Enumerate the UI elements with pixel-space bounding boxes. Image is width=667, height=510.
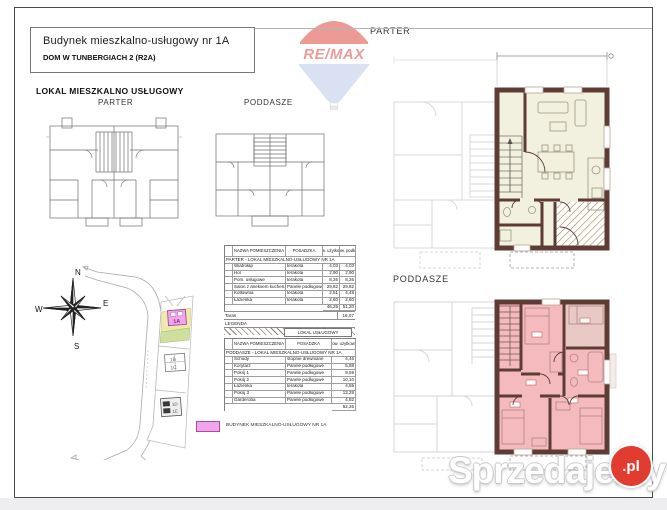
header-area1: pow. użytkowa (332, 339, 356, 350)
table-row: Pom. usługoweterakota8,268,26 (225, 277, 356, 284)
cell-name: Schody (233, 357, 286, 364)
table-row: Holterakota2,902,90 (225, 271, 356, 278)
cell-name: Wiatrołap (233, 264, 286, 271)
table-row: Kotłowniaterakota2,514,48 (225, 291, 356, 298)
balloon-basket (330, 106, 338, 110)
table-row: KorytarzPanele podłogowe5,88 (225, 364, 356, 371)
table-row: Schodystopnie drewniane4,46 (225, 357, 356, 364)
cell-area2: 4,48 (340, 291, 356, 298)
table-row: Pokój 3Panele podłogowe13,28 (225, 391, 356, 398)
terrace-outline (510, 252, 574, 268)
watermark-pl-badge: .pl (609, 444, 653, 488)
road (71, 266, 161, 460)
compass-e: E (103, 299, 108, 308)
compass-w: W (35, 305, 43, 314)
table-row: Pokój 1Panele podłogowe9,59 (225, 370, 356, 377)
compass-s: S (74, 342, 79, 351)
cell-name: Pokój 3 (233, 391, 286, 398)
table-row: Pokój 2Panele podłogowe10,10 (225, 377, 356, 384)
cell-floor: terakota (286, 277, 323, 284)
remax-logo: RE/MAX (286, 6, 382, 110)
compass-n: N (75, 268, 81, 277)
cell-area1: 29,82 (323, 284, 340, 291)
cell-floor: Panele podłogowe (286, 391, 332, 398)
plan-sheet: RE/MAX Budynek mieszkalno-usługowy nr 1A… (0, 0, 667, 510)
building-legend-label: BUDYNEK MIESZKALNO-USŁUGOWY NR 1A (226, 423, 326, 428)
cell-floor: Panele podłogowe (286, 377, 332, 384)
section-title: LOKAL MIESZKALNO USŁUGOWY (36, 86, 184, 96)
remax-logo-text: RE/MAX (303, 46, 365, 63)
building-1e-label: 1E (172, 409, 178, 414)
cell-area1: 2,51 (323, 291, 340, 298)
cell-area1: 5,88 (332, 364, 356, 371)
parter-area-table: NAZWA POMIESZCZENIA POSADZKA pow. użytko… (224, 245, 356, 311)
building-1d-1e: 1D 1E (160, 397, 181, 416)
table-row: Wiatrołapterakota4,034,03 (225, 264, 356, 271)
cell-area1: 4,82 (332, 398, 356, 405)
building-1a-label: 1A (173, 319, 180, 325)
cell-area1: 13,28 (332, 391, 356, 398)
header-area2: pow. podłóg (340, 246, 356, 257)
cell-area1: 8,26 (323, 277, 340, 284)
balloon-bottom (298, 64, 370, 104)
small-parter-plan (40, 112, 188, 232)
cell-floor: terakota (286, 264, 323, 271)
table-header-row: NAZWA POMIESZCZENIA POSADZKA pow. użytko… (225, 246, 356, 257)
usluga-hatch-label: LOKAL USŁUGOWY (284, 328, 352, 337)
building-1a: 1A (167, 309, 186, 325)
table-total-row: 52,26 (225, 404, 356, 411)
window-sill (610, 354, 616, 388)
cell-floor: terakota (286, 384, 332, 391)
cell-area2: 8,26 (340, 277, 356, 284)
cell-name: Pokój 1 (233, 370, 286, 377)
table-section-label: PARTER - LOKAL MIESZKALNO-USŁUGOWY NR 1A (225, 257, 356, 264)
header-name: NAZWA POMIESZCZENIA (233, 339, 286, 350)
table-row: GarderobaPanele podłogowe4,82 (225, 398, 356, 405)
taras-legenda-block: Taras 16,07 LEGENDA (224, 311, 355, 328)
header-area1: pow. użytkowa (323, 246, 340, 257)
header-name: NAZWA POMIESZCZENIA (233, 246, 286, 257)
building-1b-1c: 1B 1C (164, 353, 185, 371)
cell-name: Korytarz (233, 364, 286, 371)
cell-floor: terakota (286, 298, 323, 305)
building-1b-label: 1B (170, 357, 177, 363)
neighbor-unit (394, 56, 497, 268)
cell-area1: 9,59 (332, 370, 356, 377)
cell-floor: Panele podłogowe (286, 398, 332, 405)
big-parter-plan (392, 40, 660, 272)
sheet-title: Budynek mieszkalno-usługowy nr 1A (43, 35, 229, 47)
watermark-tld: .pl (622, 458, 640, 475)
cell-floor: stopnie drewniane (286, 357, 332, 364)
cell-area1: 10,10 (332, 377, 356, 384)
cell-area1: 2,60 (323, 298, 340, 305)
table-header-row: NAZWA POMIESZCZENIA POSADZKA pow. użytko… (225, 339, 356, 350)
taras-label: Taras (225, 313, 236, 318)
cell-area1: 4,55 (332, 384, 356, 391)
table-row: Łazienkaterakota2,602,60 (225, 298, 356, 305)
neighbor-unit (394, 302, 497, 470)
cell-floor: Panele podłogowe (286, 284, 323, 291)
taras-value: 16,07 (337, 312, 354, 319)
cell-name: Garderoba (233, 398, 286, 405)
header-nr (225, 339, 233, 350)
sheet-subtitle: DOM W TUNBERGIACH 2 (R2A) (43, 53, 156, 62)
cell-name: Pokój 2 (233, 377, 286, 384)
site-plan: N E S W (35, 250, 195, 460)
cell-name: Łazienka (233, 384, 286, 391)
header-floor: POSADZKA (286, 246, 323, 257)
cell-area1: 4,03 (323, 264, 340, 271)
sheet-divider-line (253, 28, 652, 29)
room-top-right (566, 304, 605, 348)
cell-floor: terakota (286, 291, 323, 298)
dimension-line (497, 52, 613, 86)
table-section-label: PODDASZE - LOKAL MIESZKALNO-USŁUGOWY NR … (225, 350, 356, 357)
title-block: Budynek mieszkalno-usługowy nr 1A DOM W … (30, 27, 255, 73)
header-nr (225, 246, 233, 257)
cell-name: Pom. usługowe (233, 277, 286, 284)
cell-area2: 4,03 (340, 264, 356, 271)
bottom-margin (0, 498, 667, 510)
cell-area2: 2,90 (340, 271, 356, 278)
cell-area2: 2,60 (340, 298, 356, 305)
cell-name: Salon z aneksem kuchen. (233, 284, 286, 291)
cell-floor: terakota (286, 271, 323, 278)
big-poddasze-label: PODDASZE (393, 274, 449, 284)
balloon-top (300, 21, 368, 44)
cell-area1: 2,90 (323, 271, 340, 278)
cell-area1: 4,46 (332, 357, 356, 364)
small-parter-label: PARTER (98, 98, 133, 107)
small-poddasze-plan (208, 118, 332, 230)
cell-name: Hol (233, 271, 286, 278)
cell-floor: Panele podłogowe (286, 364, 332, 371)
header-floor: POSADZKA (286, 339, 332, 350)
cell-area2: 29,82 (340, 284, 356, 291)
table-row: Salon z aneksem kuchen.Panele podłogowe2… (225, 284, 356, 291)
cell-name: Łazienka (233, 298, 286, 305)
building-legend-swatch (196, 421, 220, 432)
table-row: Łazienkaterakota4,55 (225, 384, 356, 391)
total-area1: 52,26 (332, 404, 356, 411)
poddasze-area-table: NAZWA POMIESZCZENIA POSADZKA pow. użytko… (224, 338, 356, 411)
cell-floor: Panele podłogowe (286, 370, 332, 377)
cell-name: Kotłownia (233, 291, 286, 298)
building-1c-label: 1C (170, 365, 177, 371)
hatched-service-room (555, 202, 605, 246)
